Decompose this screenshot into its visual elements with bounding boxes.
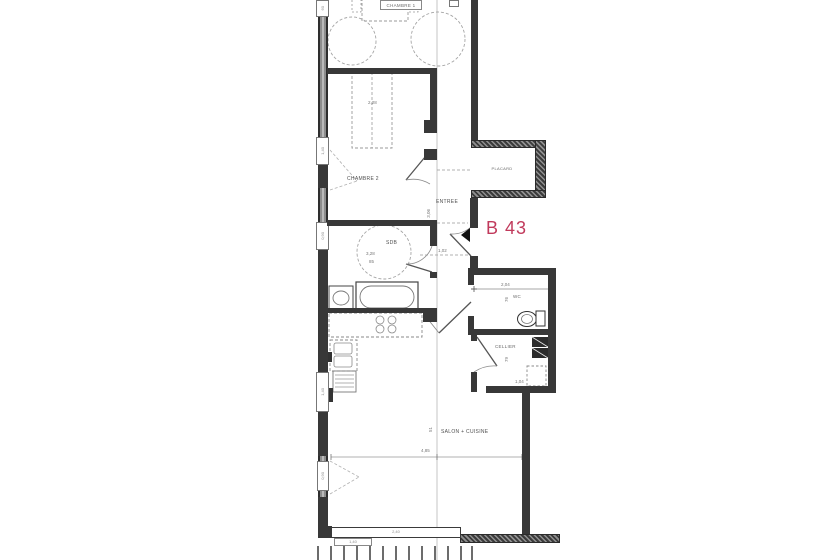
plan-linework — [0, 0, 840, 560]
dim-salon-width: 4,85 — [421, 449, 430, 454]
bay-tag-box: 1,40 — [334, 538, 372, 546]
wc-dim-tick — [471, 286, 477, 292]
placard-wall-bottom — [471, 190, 546, 198]
window-tag-box-top — [449, 0, 459, 7]
dim-entree-width: 1,02 — [438, 249, 447, 254]
window-tag-2: 1,40 — [321, 147, 325, 155]
cellier-wall-left-b — [471, 372, 477, 392]
bay-dim: 2,40 — [392, 530, 400, 534]
room-label-cellier: CELLIER — [495, 344, 516, 349]
door-leaf-wc — [439, 302, 471, 333]
window-tag-box-1: 60 — [316, 0, 329, 17]
door-arc-sdb — [406, 246, 432, 264]
wall-sdb-top — [327, 220, 437, 226]
water-heater — [527, 366, 546, 386]
hob-burner-4 — [388, 325, 396, 333]
wall-right-top — [471, 0, 478, 146]
wc-wall-top — [468, 268, 556, 275]
dim-cellier-height: 79 — [505, 357, 510, 362]
wall-entree-sdb-b — [430, 272, 437, 278]
dim-sdb-offset: 85 — [369, 260, 374, 265]
door-leaf-cellier — [477, 337, 497, 366]
dim-salon-axis: 51 — [429, 427, 434, 432]
room-label-entree: ENTREE — [436, 199, 458, 205]
window-tag-4: 1,40 — [321, 388, 325, 396]
hob-burner-3 — [376, 325, 384, 333]
entry-arrow-icon — [461, 228, 470, 242]
wc-wall-bottom — [468, 329, 556, 335]
appliance-block — [333, 371, 356, 392]
window-tag-3: 0,90 — [321, 232, 325, 240]
kitchen-counter — [329, 313, 422, 337]
nightstand-left — [352, 0, 361, 12]
dim-wardrobe: 2,28 — [368, 101, 377, 106]
wall-bottom-right — [460, 534, 560, 543]
room-label-chambre2: CHAMBRE 2 — [347, 176, 379, 182]
bay-tag: 1,40 — [349, 540, 357, 544]
window-tag-box-5: 0,90 — [317, 461, 329, 491]
wall-salon-right — [522, 386, 530, 543]
cellier-wall-bottom — [486, 386, 556, 393]
wall-corner-bottom-left — [318, 526, 332, 538]
window-tag-box-2: 1,40 — [316, 137, 329, 165]
door-arc-cellier — [474, 366, 497, 372]
door-jamb-a — [424, 120, 437, 133]
wall-chambre2-right — [430, 68, 437, 122]
dim-wc-height: 76 — [505, 297, 510, 302]
room-label-sdb: SDB — [386, 240, 397, 246]
door-jamb-kitchen — [423, 308, 437, 322]
dim-entree-height: 3,06 — [427, 209, 432, 218]
bay-dim-box: 2,40 — [388, 529, 404, 535]
unit-number: B 43 — [486, 218, 527, 239]
window-left-1 — [318, 17, 328, 137]
window-tag-box-4: 1,40 — [316, 372, 329, 412]
wc-wall-left-a — [468, 275, 474, 285]
wall-entree-sdb-a — [430, 220, 437, 246]
dim-cellier-width: 1,04 — [515, 380, 524, 385]
window-swing-b — [330, 181, 357, 190]
wall-chambre-divider — [327, 68, 437, 74]
toilet-bowl — [518, 312, 537, 327]
appliance-grid — [335, 375, 354, 387]
room-label-chambre1: CHAMBRE 1 — [387, 3, 416, 8]
swing-circle-2 — [411, 12, 465, 66]
room-label-placard: PLACARD — [483, 166, 521, 171]
window-tag-5: 0,90 — [321, 472, 325, 480]
room-label-wc: WC — [513, 294, 521, 299]
door-jamb-b — [424, 149, 437, 160]
sink-bowl-1 — [334, 343, 352, 354]
window-tag-box-3: 0,90 — [316, 222, 329, 250]
salon-window-swing-b — [330, 477, 359, 494]
hob-burner-1 — [376, 316, 384, 324]
cellier-wall-left-a — [471, 335, 477, 341]
wall-sdb-bottom — [327, 308, 423, 313]
balcony-railing-slats — [318, 546, 472, 560]
wall-right-outer — [548, 268, 556, 393]
hob-burner-2 — [388, 316, 396, 324]
dim-sdb-width: 3,28 — [366, 252, 375, 257]
window-tag-1: 60 — [321, 6, 325, 10]
window-left-2 — [318, 188, 328, 222]
dim-wc-width: 2,04 — [501, 283, 510, 288]
entry-jamb-top — [470, 198, 478, 228]
sink-bowl-2 — [334, 356, 352, 367]
salon-window-swing-a — [330, 461, 359, 477]
chambre1-label-box: CHAMBRE 1 — [380, 0, 422, 10]
door-arc-chambre2 — [406, 179, 430, 184]
room-label-salon: SALON + CUISINE — [441, 429, 488, 435]
toilet-tank — [536, 311, 545, 326]
swing-circle-1 — [328, 17, 376, 65]
floor-plan: 60 1,40 0,90 1,40 0,90 1,40 2,40 CHAMBRE… — [0, 0, 840, 560]
door-leaf-sdb — [406, 264, 432, 272]
